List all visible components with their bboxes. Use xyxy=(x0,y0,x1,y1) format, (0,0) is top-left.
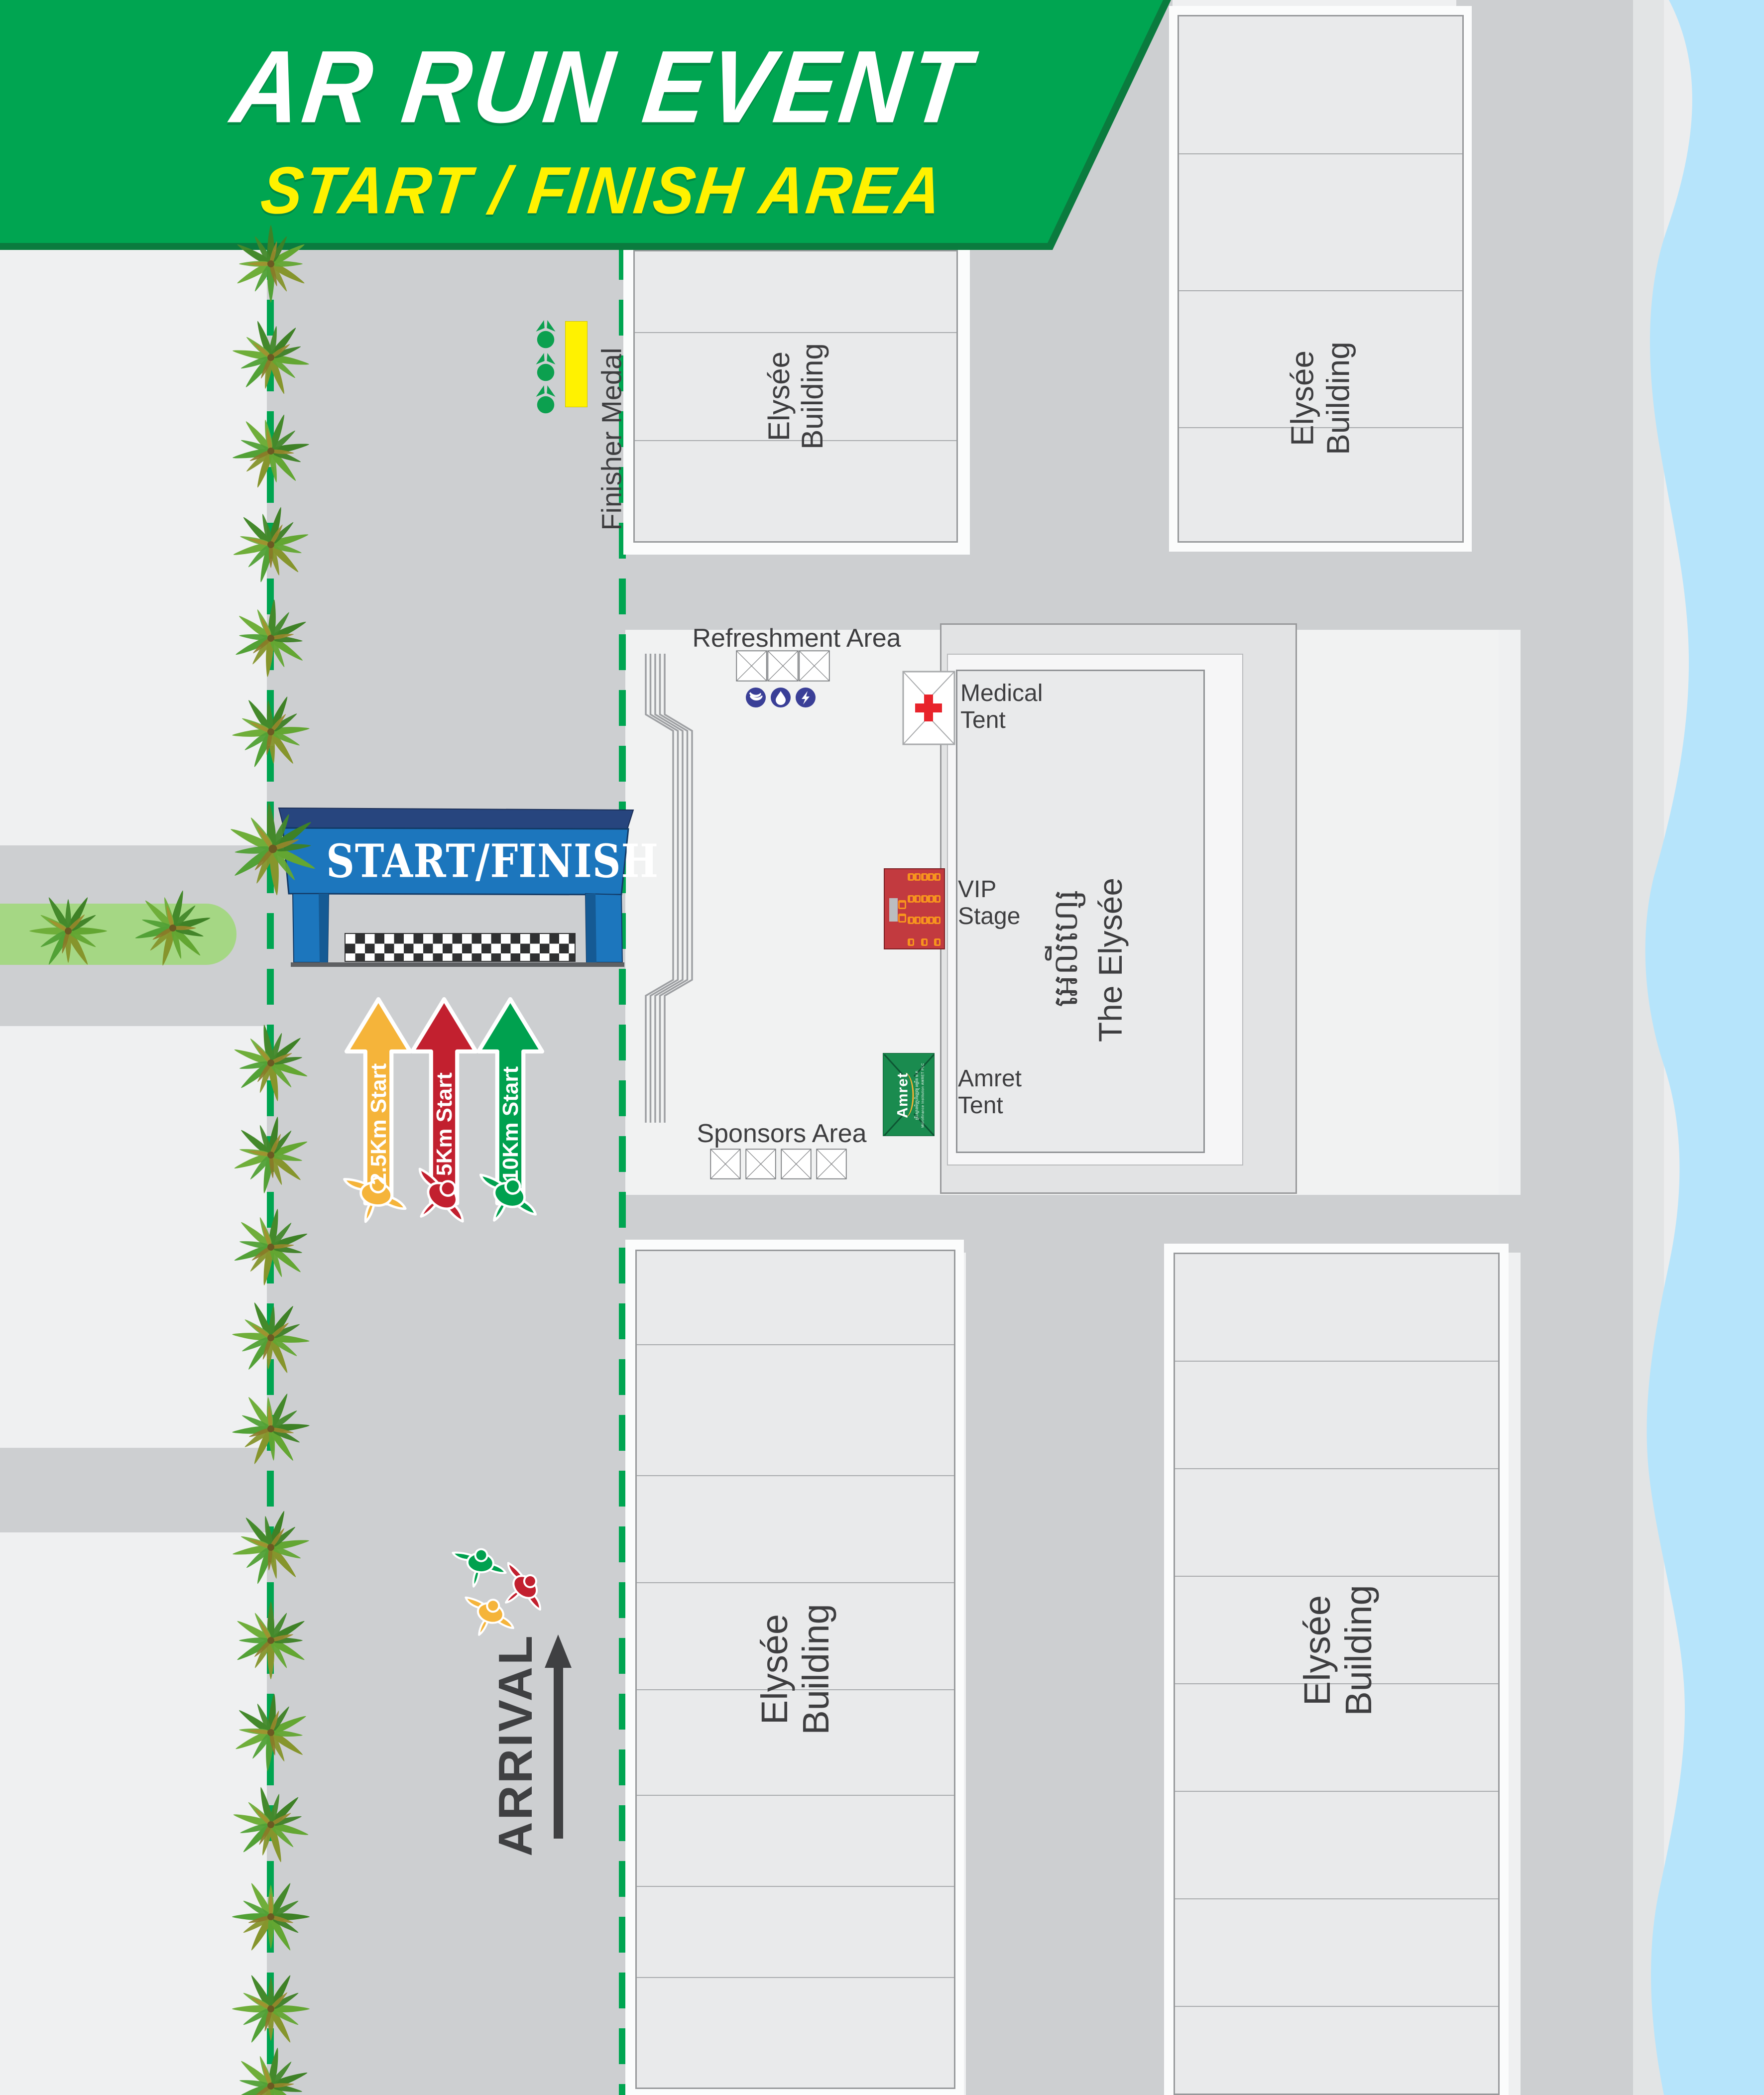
palm-tree-icon xyxy=(212,1005,329,1122)
palm-tree-icon xyxy=(227,1687,316,1778)
palm-tree-icon xyxy=(212,1766,330,1883)
palm-tree-icon xyxy=(220,493,321,596)
palm-tree-icon xyxy=(217,2033,324,2095)
palm-tree-icon xyxy=(217,1194,324,1300)
event-area-map: Elysée Building Elysée Building Elysée B… xyxy=(0,0,1764,2095)
palm-tree-icon xyxy=(11,874,124,988)
palm-tree-icon xyxy=(226,1385,317,1474)
palm-tree-icon xyxy=(222,403,319,499)
palm-tree-icon xyxy=(203,780,343,918)
palm-tree-icon xyxy=(214,1584,328,1697)
palm-tree-icon xyxy=(213,299,330,416)
palm-tree-icon xyxy=(230,222,312,306)
palm-tree-icon xyxy=(229,1876,313,1958)
palm-tree-icon xyxy=(214,1952,327,2066)
palm-tree-icon xyxy=(121,877,224,978)
palm-tree-icon xyxy=(223,1106,319,1203)
palm-tree-icon xyxy=(213,1280,329,1396)
palm-trees xyxy=(0,0,1764,2095)
palm-tree-icon xyxy=(216,677,326,788)
palm-tree-icon xyxy=(216,583,327,694)
palm-tree-icon xyxy=(218,1494,324,1601)
